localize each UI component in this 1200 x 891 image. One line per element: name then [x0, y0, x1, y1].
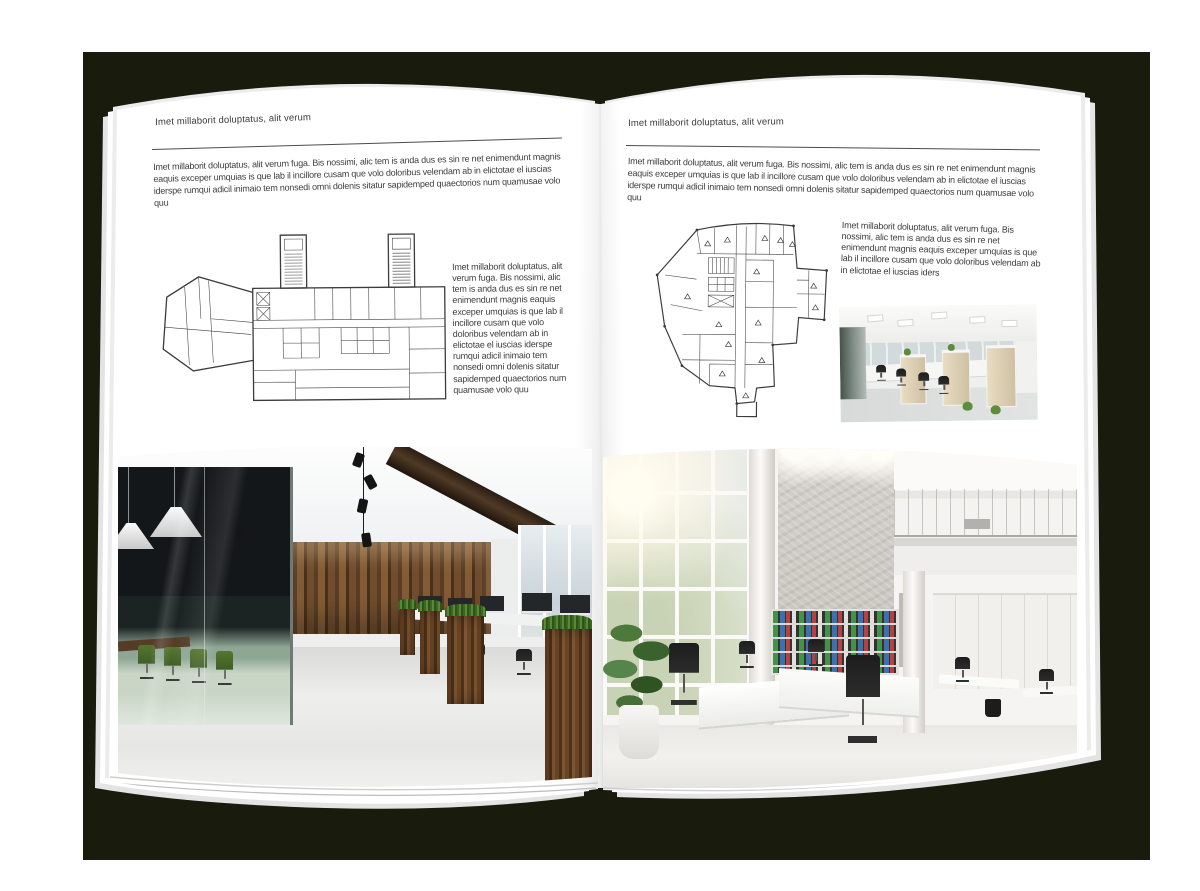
left-page-header: Imet millaborit doluptatus, alit verum — [155, 112, 311, 128]
plant — [948, 344, 955, 351]
plant — [904, 348, 911, 355]
right-page-header: Imet millaborit doluptatus, alit verum — [628, 116, 784, 129]
office-chair — [1039, 669, 1054, 694]
right-floor-plan — [644, 215, 839, 421]
left-floor-plan — [154, 229, 448, 418]
left-header-rule — [152, 138, 562, 150]
wood-planter — [545, 629, 592, 788]
office-chair — [739, 641, 755, 668]
ceiling-light — [867, 314, 884, 322]
vent-grille — [964, 519, 990, 529]
monitor — [522, 593, 552, 613]
left-page: Imet millaborit doluptatus, alit verum I… — [100, 65, 605, 810]
office-chair — [938, 376, 949, 394]
ceiling-light — [969, 316, 985, 324]
wood-cabinet — [986, 345, 1017, 407]
waste-bin — [985, 699, 1001, 717]
office-chair — [876, 365, 886, 381]
wood-planter — [420, 611, 440, 674]
spotlight — [361, 532, 372, 547]
plant-pot — [619, 705, 659, 759]
right-header-rule — [626, 145, 1040, 150]
concrete-wall — [778, 443, 894, 609]
right-office-photo — [603, 443, 1077, 788]
balcony-rail — [894, 489, 1077, 537]
right-intro-paragraph: Imet millaborit doluptatus, alit verum f… — [627, 156, 1040, 212]
wood-planter — [400, 609, 415, 655]
ceiling-light — [897, 319, 913, 327]
left-intro-paragraph: Imet millaborit doluptatus, alit verum f… — [153, 151, 569, 209]
wood-planter — [447, 616, 484, 704]
light-track — [363, 447, 364, 543]
glass-reflection — [118, 467, 290, 725]
plant — [963, 402, 973, 411]
planter-grass — [542, 615, 592, 630]
office-chair — [955, 657, 970, 682]
office-chair — [918, 372, 929, 390]
ceiling-light — [931, 311, 947, 319]
left-side-paragraph: Imet millaborit doluptatus, alit verum f… — [452, 261, 577, 396]
glass-meeting-room — [118, 467, 293, 725]
mezzanine — [894, 443, 1077, 575]
brochure-mockup: Imet millaborit doluptatus, alit verum I… — [0, 0, 1200, 891]
left-office-photo — [118, 447, 592, 788]
right-side-paragraph: Imet millaborit doluptatus, alit verum f… — [840, 220, 1041, 281]
monitor — [560, 595, 590, 615]
side-wall — [1016, 341, 1038, 393]
plant — [991, 405, 1001, 414]
ceiling-light — [1001, 320, 1017, 327]
small-office-photo — [839, 305, 1038, 423]
right-page: Imet millaborit doluptatus, alit verum I… — [595, 48, 1095, 798]
office-chair — [808, 639, 824, 666]
office-chair — [846, 655, 880, 743]
office-chair — [516, 649, 532, 675]
stairwell-glimpse — [839, 327, 866, 399]
office-chair — [896, 368, 906, 385]
